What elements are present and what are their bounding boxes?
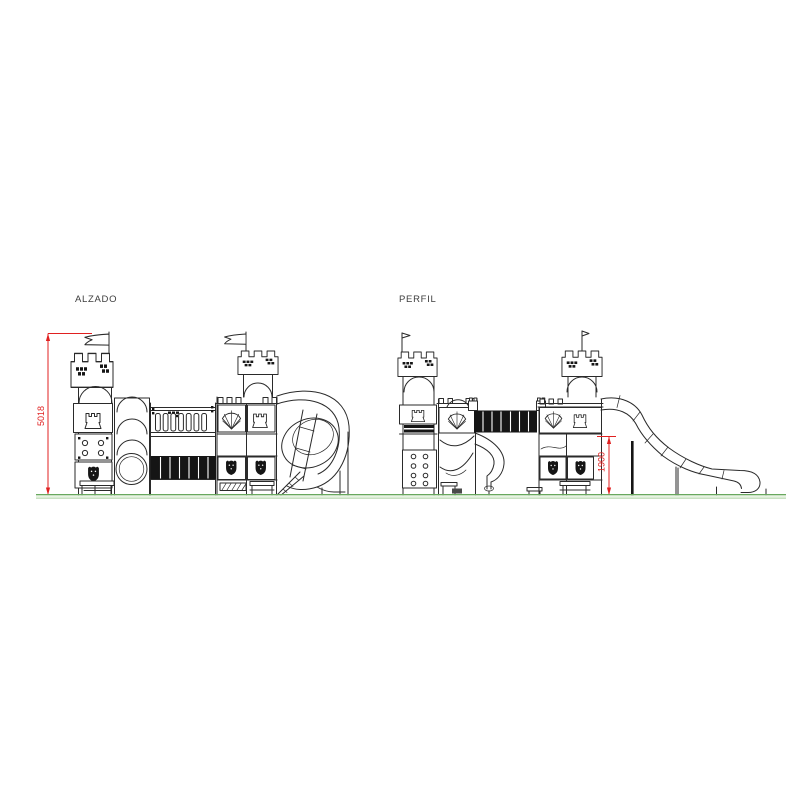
wave-slide [601,396,769,497]
perfil-view: PERFIL [398,294,769,496]
spiral-tube-slide [274,391,349,496]
flag-pennant [225,334,246,344]
rook-emblem [253,414,268,428]
battlement-crown [562,351,602,376]
playground-drawing-svg: ALZADO 5018 [0,0,800,800]
technical-drawing-canvas: ALZADO 5018 [0,0,800,800]
alzado-right-tower [216,332,278,496]
palisade-slats [156,414,207,432]
dimension-overall-height-label: 5018 [36,406,46,426]
ground-block [452,489,462,494]
flag-pennant [85,334,109,345]
alzado-view: ALZADO 5018 [36,294,349,496]
access-bench [560,482,590,497]
curved-slide [475,433,504,496]
battlement-crown [71,353,113,387]
slide-supports [631,441,769,496]
alzado-view-label: ALZADO [75,294,117,305]
rook-emblem [573,415,586,428]
battlement-crown [398,352,437,377]
perfil-main-tower [538,331,603,496]
flag-pennant [402,333,410,338]
flag-pennant [582,331,589,336]
palisade-bridge [151,403,217,496]
dimension-platform-height: 1900 [597,437,617,496]
access-bench [250,482,274,497]
perfil-view-label: PERFIL [399,294,436,305]
rook-emblem [411,410,424,421]
crawl-tube [115,397,150,496]
dimension-platform-height-label: 1900 [597,452,607,472]
parapet-teeth [218,398,277,404]
perfil-center-tower [437,399,477,497]
tube-bridge [469,398,546,433]
alzado-left-tower [71,332,114,496]
slide-opening-curves [440,436,474,475]
bridge-end-caps [469,398,546,411]
rook-emblem [85,414,101,429]
deck-panel [151,456,217,480]
perfil-rear-tower [398,333,437,496]
hatched-base-block [220,483,246,491]
climbing-wall [403,450,437,488]
ground-line [36,495,786,499]
battlement-crown [238,351,278,375]
